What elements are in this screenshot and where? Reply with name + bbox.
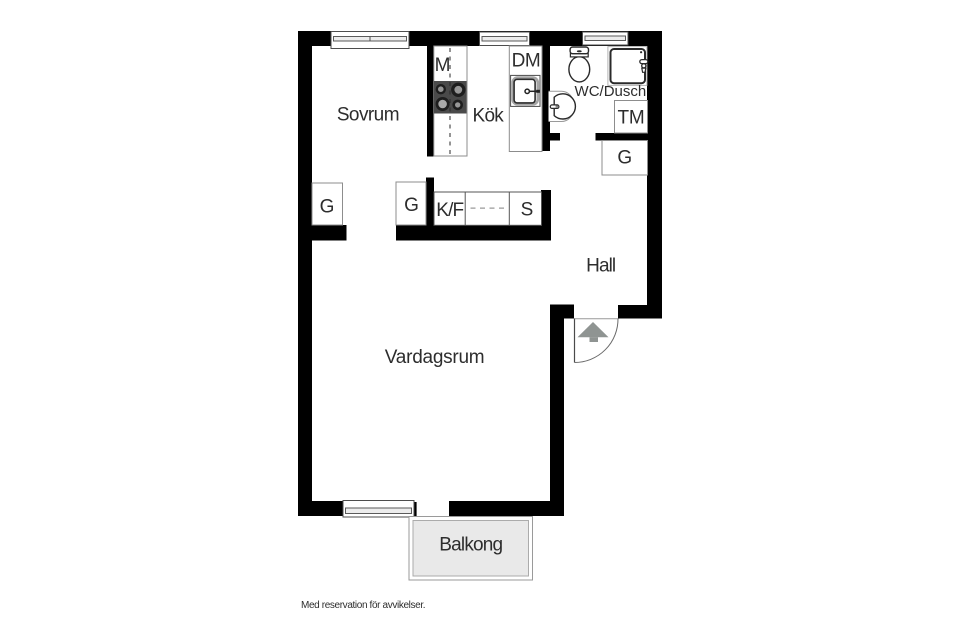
svg-text:Kök: Kök — [472, 106, 504, 127]
svg-text:Balkong: Balkong — [439, 535, 502, 556]
svg-text:S: S — [521, 200, 534, 221]
svg-text:TM: TM — [617, 107, 644, 128]
svg-text:G: G — [617, 148, 632, 169]
svg-text:DM: DM — [512, 50, 541, 71]
svg-text:Hall: Hall — [586, 256, 615, 277]
svg-text:G: G — [404, 195, 419, 216]
svg-text:Sovrum: Sovrum — [337, 104, 399, 125]
svg-text:G: G — [320, 197, 335, 218]
svg-text:WC/Dusch: WC/Dusch — [575, 83, 647, 100]
svg-text:Med reservation för avvikelser: Med reservation för avvikelser. — [301, 600, 425, 611]
svg-text:K/F: K/F — [436, 200, 463, 221]
svg-text:M: M — [435, 55, 451, 76]
svg-text:Vardagsrum: Vardagsrum — [385, 347, 485, 368]
